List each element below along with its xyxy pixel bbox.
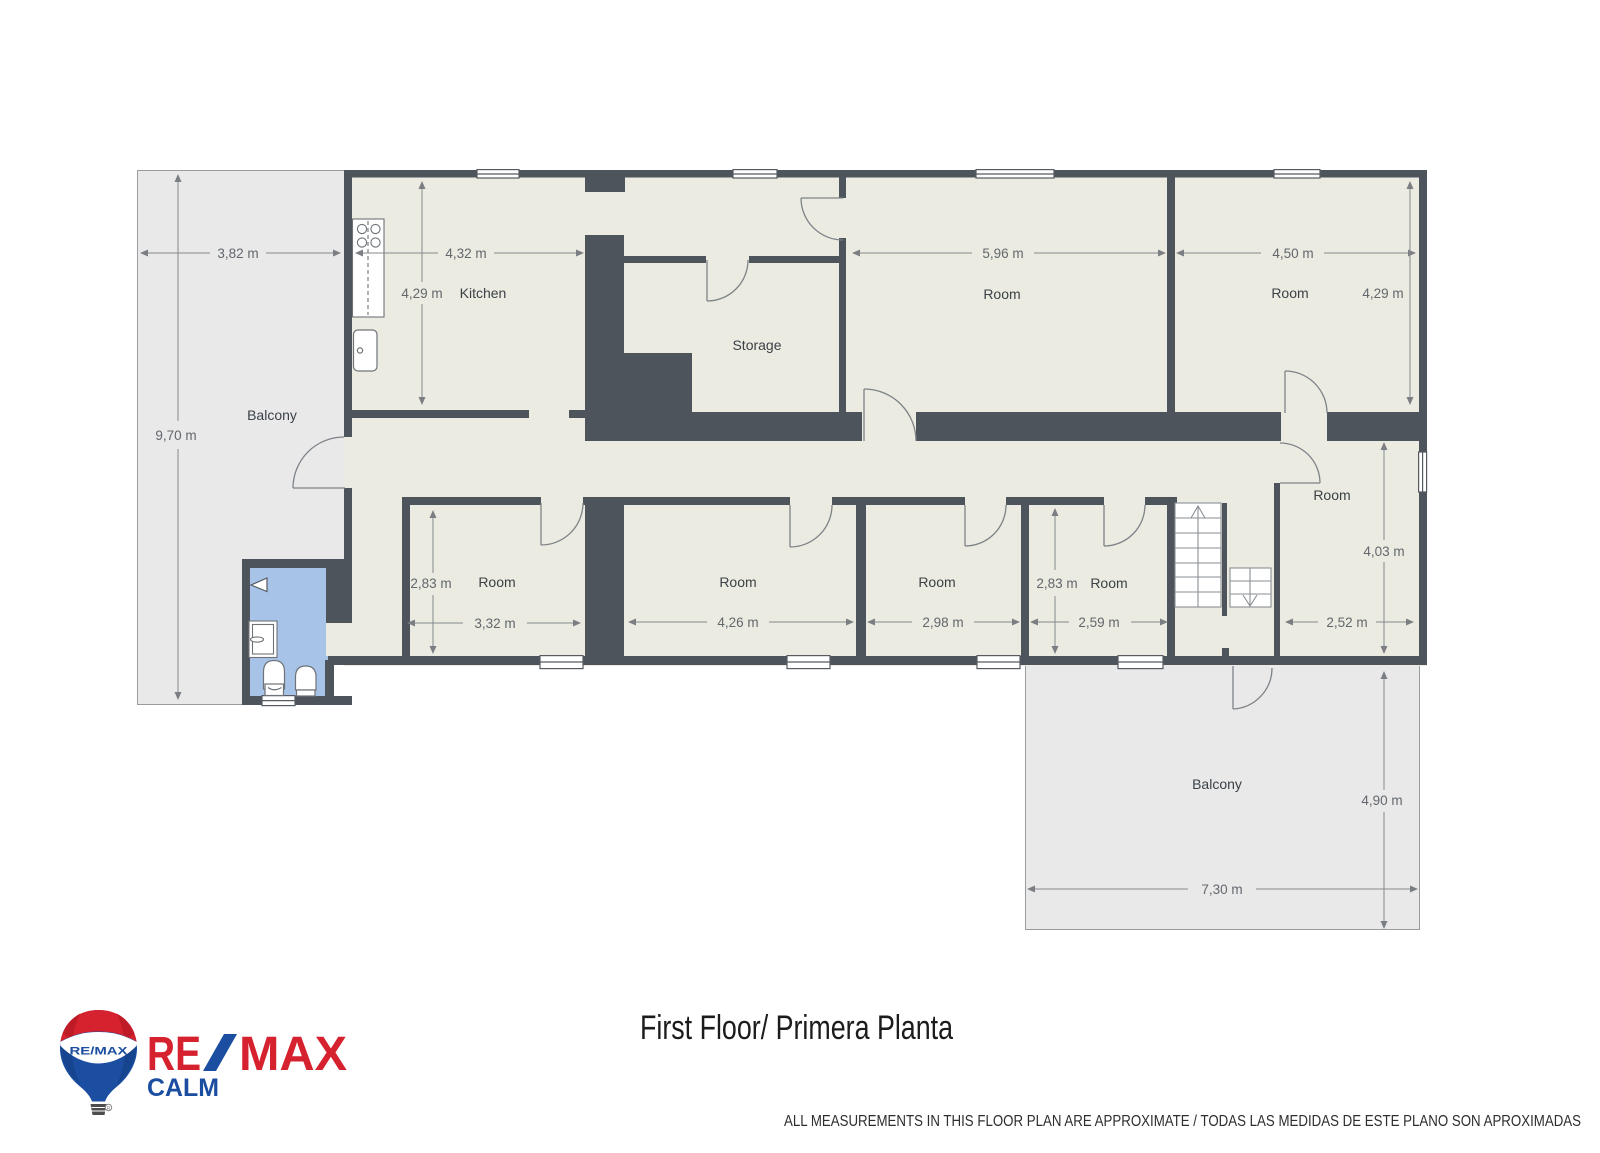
svg-text:4,03 m: 4,03 m bbox=[1363, 544, 1404, 559]
svg-text:Room: Room bbox=[719, 574, 756, 590]
svg-text:CALM: CALM bbox=[147, 1074, 219, 1102]
svg-text:R: R bbox=[107, 1106, 111, 1112]
svg-text:ALL MEASUREMENTS IN THIS FLOOR: ALL MEASUREMENTS IN THIS FLOOR PLAN ARE … bbox=[784, 1113, 1581, 1130]
svg-text:Room: Room bbox=[1313, 487, 1350, 503]
svg-text:7,30 m: 7,30 m bbox=[1201, 882, 1242, 897]
svg-text:2,83 m: 2,83 m bbox=[1036, 576, 1077, 591]
svg-text:3,32 m: 3,32 m bbox=[474, 616, 515, 631]
svg-text:9,70 m: 9,70 m bbox=[155, 428, 196, 443]
svg-text:Room: Room bbox=[478, 574, 515, 590]
svg-text:RE/MAX: RE/MAX bbox=[70, 1046, 129, 1058]
svg-text:Room: Room bbox=[1090, 575, 1127, 591]
svg-text:First Floor/ Primera Planta: First Floor/ Primera Planta bbox=[640, 1009, 953, 1047]
svg-text:2,98 m: 2,98 m bbox=[922, 615, 963, 630]
svg-text:4,32 m: 4,32 m bbox=[445, 246, 486, 261]
svg-text:Kitchen: Kitchen bbox=[460, 285, 507, 301]
svg-text:4,29 m: 4,29 m bbox=[1362, 286, 1403, 301]
svg-text:4,29 m: 4,29 m bbox=[401, 286, 442, 301]
svg-text:2,52 m: 2,52 m bbox=[1326, 615, 1367, 630]
svg-text:2,59 m: 2,59 m bbox=[1078, 615, 1119, 630]
svg-text:MAX: MAX bbox=[239, 1028, 347, 1081]
svg-text:4,50 m: 4,50 m bbox=[1272, 246, 1313, 261]
svg-text:5,96 m: 5,96 m bbox=[982, 246, 1023, 261]
svg-text:Room: Room bbox=[918, 574, 955, 590]
svg-text:Storage: Storage bbox=[732, 337, 781, 353]
svg-text:Balcony: Balcony bbox=[1192, 776, 1242, 792]
svg-text:Room: Room bbox=[983, 286, 1020, 302]
svg-text:Balcony: Balcony bbox=[247, 407, 297, 423]
svg-text:2,83 m: 2,83 m bbox=[410, 576, 451, 591]
svg-text:4,26 m: 4,26 m bbox=[717, 615, 758, 630]
svg-text:4,90 m: 4,90 m bbox=[1361, 793, 1402, 808]
svg-text:3,82 m: 3,82 m bbox=[217, 246, 258, 261]
svg-text:Room: Room bbox=[1271, 285, 1308, 301]
